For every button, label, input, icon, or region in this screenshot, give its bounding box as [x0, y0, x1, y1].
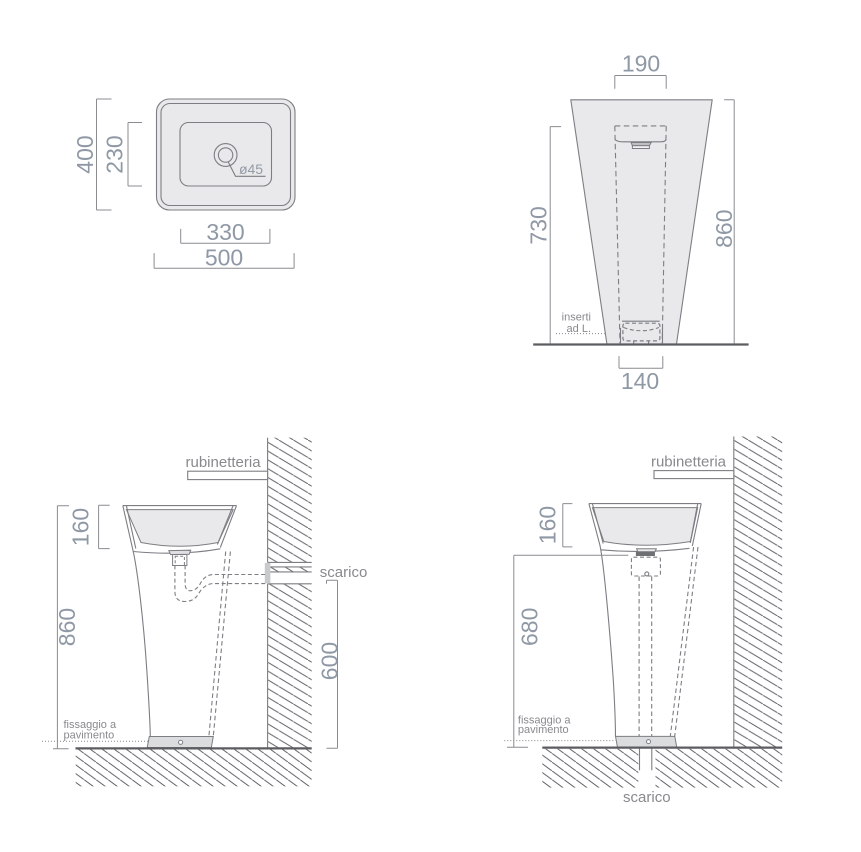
- svg-text:160: 160: [535, 506, 561, 544]
- svg-text:pavimento: pavimento: [64, 729, 115, 741]
- svg-text:680: 680: [517, 608, 543, 646]
- svg-text:600: 600: [316, 642, 342, 680]
- svg-text:400: 400: [72, 135, 98, 173]
- svg-text:330: 330: [206, 219, 244, 245]
- svg-text:160: 160: [68, 508, 94, 546]
- svg-text:pavimento: pavimento: [518, 724, 569, 736]
- svg-text:860: 860: [711, 210, 737, 248]
- svg-text:730: 730: [526, 206, 552, 244]
- svg-text:rubinetteria: rubinetteria: [651, 454, 727, 471]
- svg-text:scarico: scarico: [623, 789, 671, 806]
- svg-text:860: 860: [54, 608, 80, 646]
- svg-text:rubinetteria: rubinetteria: [186, 454, 262, 471]
- svg-text:190: 190: [622, 51, 660, 77]
- svg-text:230: 230: [102, 135, 128, 173]
- svg-text:scarico: scarico: [320, 564, 368, 581]
- svg-text:140: 140: [621, 368, 659, 394]
- svg-text:inserti: inserti: [562, 311, 591, 323]
- svg-text:500: 500: [205, 245, 243, 271]
- svg-text:ø45: ø45: [239, 161, 263, 177]
- svg-text:ad L.: ad L.: [567, 323, 591, 335]
